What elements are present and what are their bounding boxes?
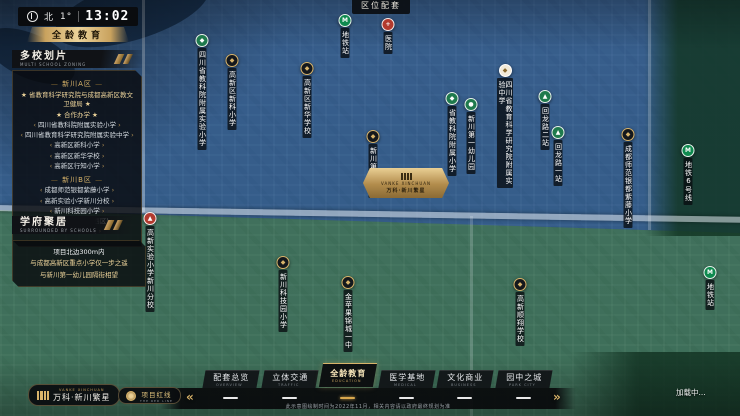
map-marker-station-green[interactable]: ▲回龙路一站	[552, 126, 565, 186]
map-marker-metro[interactable]: M地铁站	[704, 266, 717, 310]
marker-label: 新川科技园小学	[279, 270, 288, 332]
station-green-icon: ▲	[539, 90, 552, 103]
clock-time: 13:02	[85, 9, 129, 24]
scholar-panel-header: 学府聚居 SURROUNDED BY SCHOOLS	[12, 216, 132, 234]
map-marker-school-dark[interactable]: ◆新川科技园小学	[277, 256, 290, 332]
school-list-item[interactable]: 四川省教科院附属实验小学	[15, 122, 139, 130]
tab-label: 立体交通	[272, 372, 308, 383]
tab-sublabel: TRAFFIC	[278, 383, 299, 387]
map-marker-school-dark[interactable]: ◆高新顺翔学校	[514, 278, 527, 346]
tab-sublabel: MEDICAL	[394, 383, 417, 387]
marker-label: 省教科院附属小学	[448, 106, 457, 176]
panel-title: 学府聚居	[20, 217, 132, 228]
map-marker-school-dark[interactable]: ◆高新区新华学校	[301, 62, 314, 138]
school-dark-icon: ◆	[277, 256, 290, 269]
marker-label: 地铁6号线	[684, 158, 693, 205]
school-dark-icon: ◆	[342, 276, 355, 289]
tab-sublabel: EDUCATION	[332, 379, 362, 383]
section-title: 新川B区	[15, 175, 139, 185]
school-list-item[interactable]: 高新实验小学新川分校	[15, 198, 139, 206]
marker-label: 回龙路二站	[541, 104, 550, 150]
tab-dash	[204, 397, 258, 399]
marker-label: 成都师范银都紫藤小学	[624, 142, 633, 228]
marker-label: 地铁站	[341, 28, 350, 58]
building-icon	[401, 173, 412, 180]
station-green-icon: ▲	[552, 126, 565, 139]
tab-sublabel: BUSINESS	[451, 383, 477, 387]
tab-全龄教育[interactable]: 全龄教育EDUCATION	[319, 363, 377, 387]
project-logo-pill[interactable]: VANKE XINCHUAN 万科·新川繁星	[28, 384, 120, 406]
tab-label: 全龄教育	[330, 368, 366, 379]
scholar-line: 与成都高新区重点小学仅一步之遥	[16, 259, 142, 267]
marker-label: 高新区新科小学	[228, 68, 237, 130]
map-marker-station-green[interactable]: ▲回龙路二站	[539, 90, 552, 150]
map-marker-metro[interactable]: M地铁6号线	[682, 144, 695, 205]
school-dark-icon: ◆	[367, 130, 380, 143]
north-label: 北	[44, 10, 54, 23]
tab-文化商业[interactable]: 文化商业BUSINESS	[436, 370, 493, 388]
tab-sublabel: PARK CITY	[509, 383, 536, 387]
metro-icon: M	[339, 14, 352, 27]
school-green-icon: ◆	[446, 92, 459, 105]
tab-label: 配套总览	[213, 372, 249, 383]
map-marker-school-dark[interactable]: ◆高新区新科小学	[226, 54, 239, 130]
tab-indicator-dashes	[204, 397, 550, 399]
school-dark-icon: ◆	[514, 278, 527, 291]
panel-subtitle: MULTI SCHOOL ZONING	[20, 62, 142, 67]
redline-label-en: THE RED LINE	[140, 399, 173, 403]
redline-label-cn: 项目红线	[141, 389, 171, 399]
logo-text-cn: 万科·新川繁星	[53, 392, 111, 403]
marker-label: 高新实验小学新川分校	[146, 226, 155, 312]
marker-label: 地铁站	[706, 280, 715, 310]
marker-label: 金苹果锦城一中	[344, 290, 353, 352]
hospital-icon: +	[382, 18, 395, 31]
map-marker-school-green[interactable]: ◆省教科院附属小学	[446, 92, 459, 176]
marker-label: 高新区新华学校	[303, 76, 312, 138]
marker-label: 四川省教科院附属实验小学	[198, 48, 207, 150]
marker-label: 高新顺翔学校	[516, 292, 525, 346]
section-title: 新川A区	[15, 79, 139, 89]
tab-立体交通[interactable]: 立体交通TRAFFIC	[261, 370, 318, 388]
marker-label: 四川省教育科学研究院附属实验中学	[497, 78, 513, 188]
school-green-icon: ◆	[196, 34, 209, 47]
tab-园中之城[interactable]: 园中之城PARK CITY	[495, 370, 552, 388]
marker-label: 回龙路一站	[554, 140, 563, 186]
map-marker-metro[interactable]: M地铁站	[339, 14, 352, 58]
school-dark-icon: ◆	[226, 54, 239, 67]
tab-dash	[380, 397, 434, 399]
map-marker-school-white[interactable]: ◆四川省教育科学研究院附属实验中学	[497, 64, 513, 188]
compass-icon	[27, 11, 38, 22]
sandbox-map-app: 北 1° 13:02 全龄教育 区位配套 多校划片 MULTI SCHOOL Z…	[0, 0, 740, 416]
tab-label: 文化商业	[447, 372, 483, 383]
school-list-item[interactable]: 高新区新华学校	[15, 153, 139, 161]
map-marker-hospital[interactable]: +医院	[382, 18, 395, 54]
map-marker-kinder-green[interactable]: ●新川第一幼儿园	[465, 98, 478, 174]
map-disclaimer: 此示意图绘制时间为2022年11月，相关内容请以政府最终规划为准	[160, 403, 576, 410]
tab-dash	[321, 397, 375, 399]
panel-subtitle: SURROUNDED BY SCHOOLS	[20, 228, 132, 233]
loading-status-text: 加载中...	[676, 387, 706, 398]
metro-icon: M	[682, 144, 695, 157]
map-marker-school-dark[interactable]: ◆金苹果锦城一中	[342, 276, 355, 352]
project-name-cn: 万科·新川繁星	[387, 187, 426, 194]
page-title-banner: 全龄教育	[27, 27, 129, 42]
redline-toggle-pill[interactable]: 项目红线 THE RED LINE	[118, 387, 181, 404]
school-list-item[interactable]: 新川科技园小学	[15, 208, 139, 216]
multi-school-panel-header: 多校划片 MULTI SCHOOL ZONING	[12, 50, 142, 68]
school-white-icon: ◆	[499, 64, 512, 77]
school-list-item[interactable]: 高新区新科小学	[15, 142, 139, 150]
tab-label: 医学基地	[389, 372, 425, 383]
kinder-green-icon: ●	[465, 98, 478, 111]
cooperation-note: ★ 合作办学 ★	[18, 111, 136, 120]
tab-sublabel: OVERVIEW	[216, 383, 243, 387]
redline-icon	[126, 391, 136, 401]
panel-title: 多校划片	[20, 51, 142, 62]
scholar-panel: 项目北边300m内与成都高新区重点小学仅一步之遥与新川第一幼儿园隔街相望	[12, 240, 146, 287]
tab-dash	[263, 397, 317, 399]
metro-icon: M	[704, 266, 717, 279]
tab-dash	[497, 397, 551, 399]
map-marker-school-green[interactable]: ◆四川省教科院附属实验小学	[196, 34, 209, 150]
compass-clock-bar: 北 1° 13:02	[18, 7, 138, 26]
divider	[78, 11, 79, 22]
marker-label: 新川第一幼儿园	[467, 112, 476, 174]
marker-label: 医院	[384, 32, 393, 54]
tab-label: 园中之城	[506, 372, 542, 383]
tab-医学基地[interactable]: 医学基地MEDICAL	[378, 370, 435, 388]
tab-配套总览[interactable]: 配套总览OVERVIEW	[202, 370, 259, 388]
area-category-label[interactable]: 区位配套	[352, 0, 410, 14]
heading-degrees: 1°	[60, 12, 72, 22]
project-plaque[interactable]: VANKE XINCHUAN 万科·新川繁星	[363, 168, 449, 198]
school-list-item[interactable]: 成都师范银都紫藤小学	[15, 187, 139, 195]
school-dark-icon: ◆	[301, 62, 314, 75]
prev-category-arrow[interactable]: «	[186, 391, 194, 403]
category-tabs: 配套总览OVERVIEW立体交通TRAFFIC全龄教育EDUCATION医学基地…	[204, 370, 550, 388]
school-list-item[interactable]: 高新区行知小学	[15, 163, 139, 171]
school-dark-icon: ◆	[622, 128, 635, 141]
map-marker-school-dark[interactable]: ◆成都师范银都紫藤小学	[622, 128, 635, 228]
hospital-icon: ▲	[144, 212, 157, 225]
tab-dash	[438, 397, 492, 399]
cooperation-note: ★ 省教育科学研究院与成都高新区教文卫健局 ★	[18, 91, 136, 109]
project-name-en: VANKE XINCHUAN	[381, 181, 431, 186]
school-list-item[interactable]: 四川省教育科学研究院附属实验中学	[15, 132, 139, 140]
next-category-arrow[interactable]: »	[553, 391, 561, 403]
scholar-line: 项目北边300m内	[16, 248, 142, 256]
scholar-line: 与新川第一幼儿园隔街相望	[16, 271, 142, 279]
logo-building-icon	[37, 391, 49, 400]
